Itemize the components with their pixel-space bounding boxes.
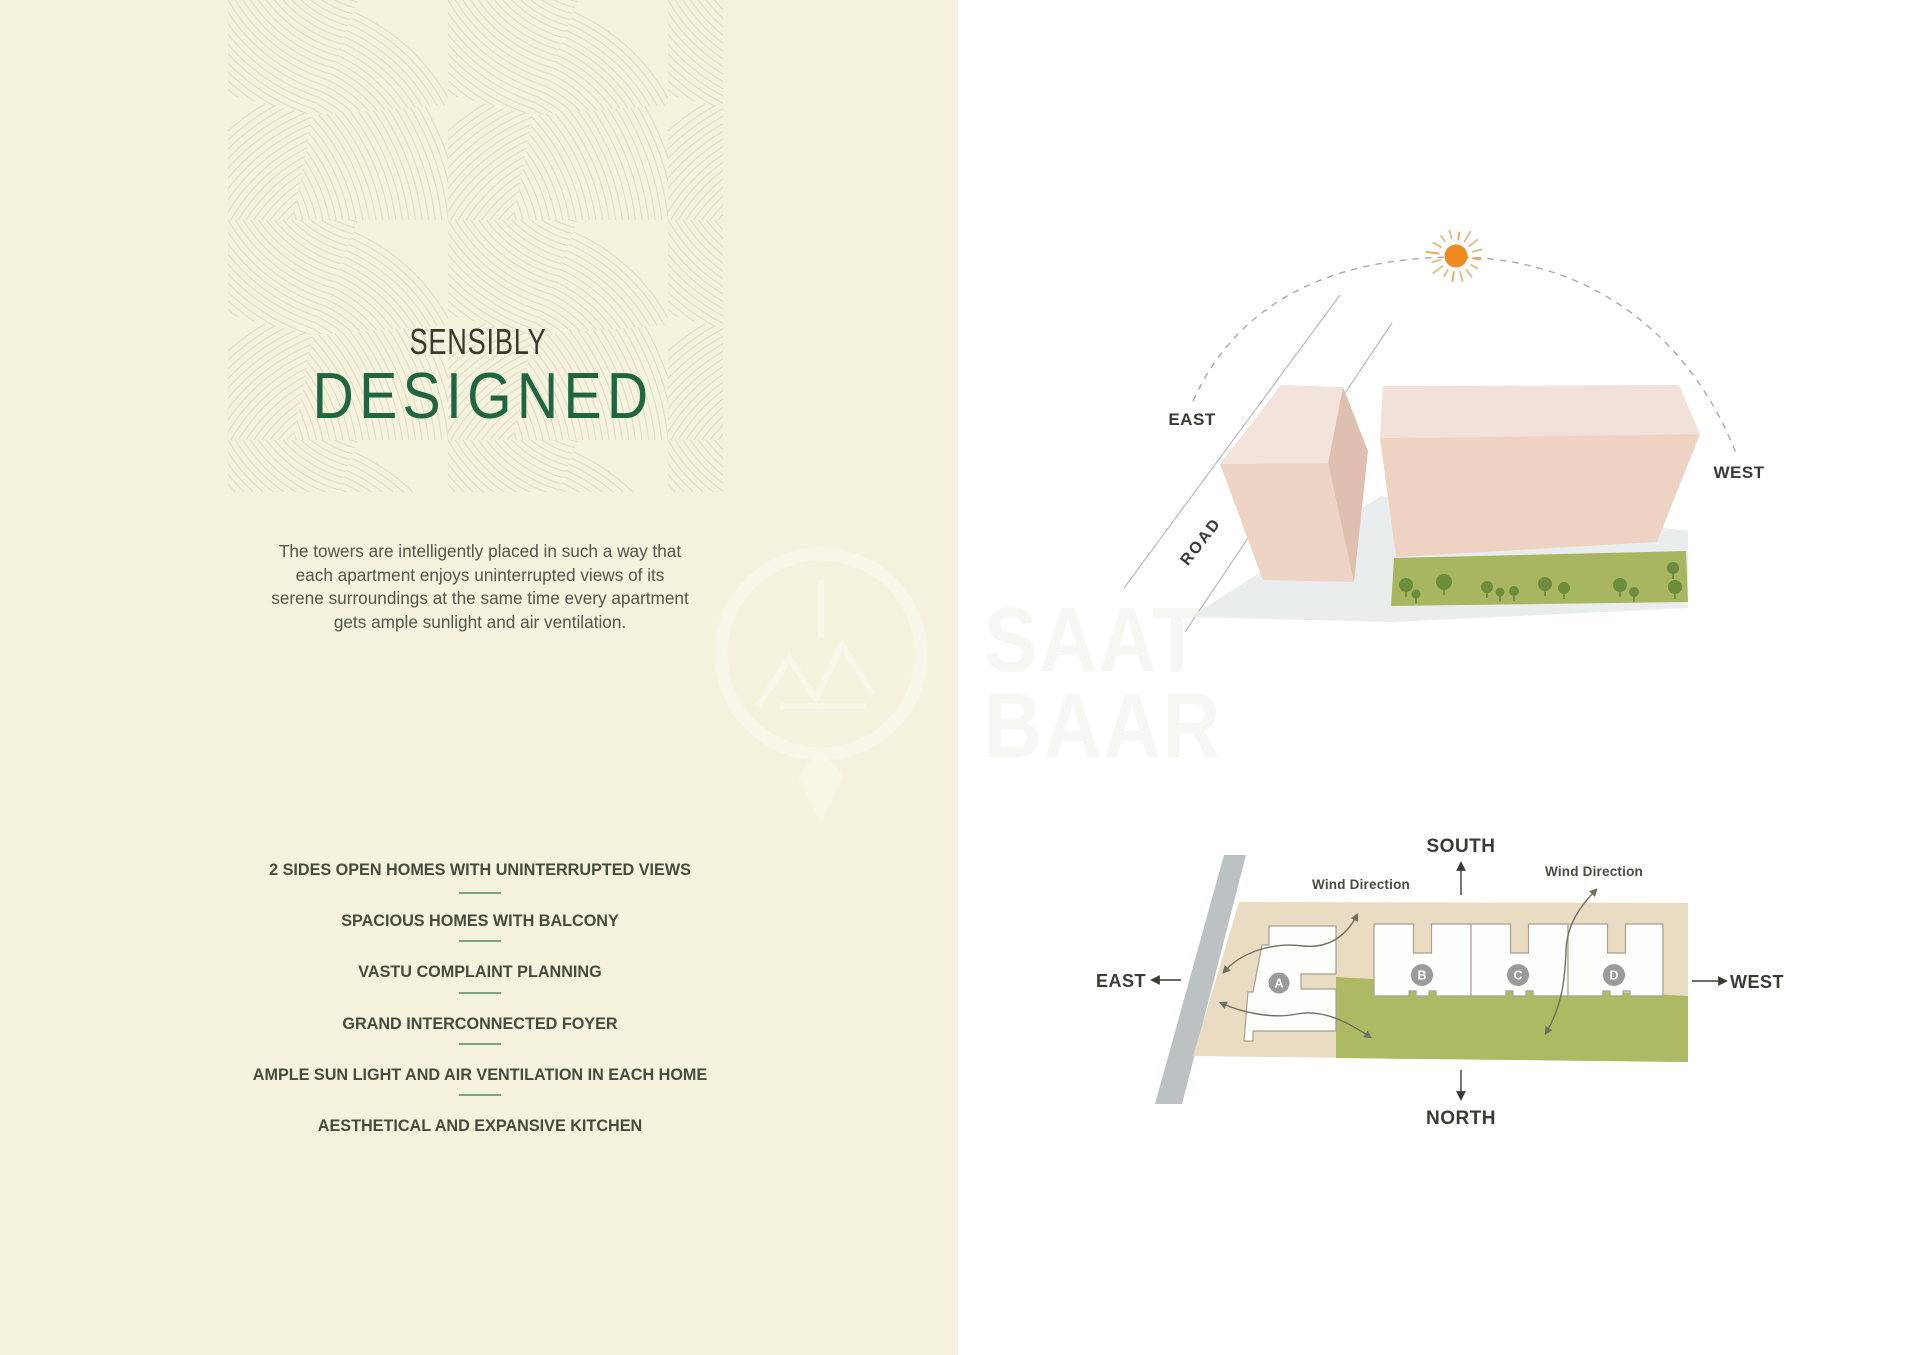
svg-text:WEST: WEST (1730, 972, 1784, 992)
svg-text:B: B (1417, 969, 1426, 983)
svg-text:EAST: EAST (1168, 410, 1215, 429)
svg-text:ROAD: ROAD (1178, 515, 1225, 569)
svg-text:A: A (1274, 977, 1283, 991)
svg-text:Wind Direction: Wind Direction (1545, 864, 1643, 879)
svg-text:NORTH: NORTH (1426, 1108, 1496, 1129)
svg-text:SOUTH: SOUTH (1427, 836, 1496, 857)
svg-text:C: C (1513, 969, 1522, 983)
svg-text:Wind Direction: Wind Direction (1312, 877, 1410, 892)
svg-text:WEST: WEST (1713, 463, 1764, 482)
svg-text:EAST: EAST (1096, 971, 1146, 991)
svg-text:D: D (1609, 969, 1618, 983)
